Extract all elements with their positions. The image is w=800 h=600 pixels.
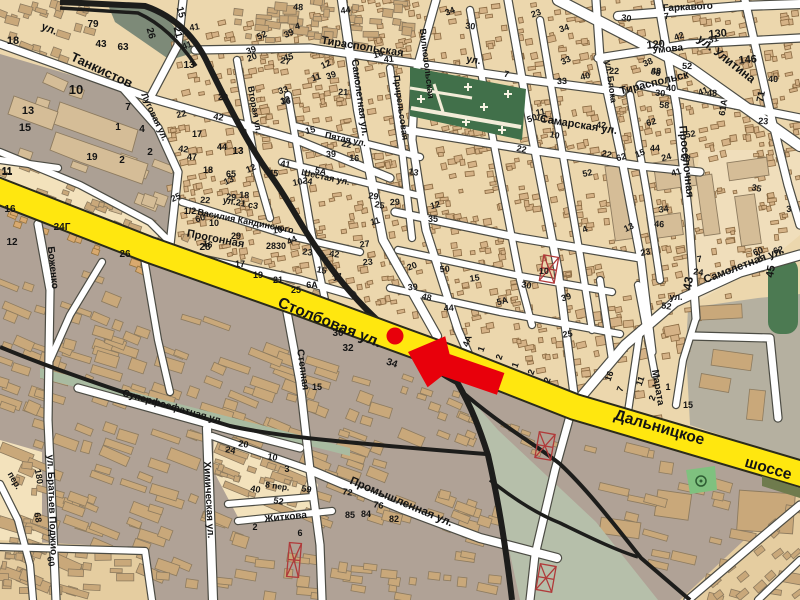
- svg-text:58: 58: [659, 100, 670, 111]
- svg-text:10: 10: [539, 266, 549, 276]
- svg-text:19: 19: [253, 270, 263, 280]
- svg-text:32: 32: [342, 343, 354, 354]
- svg-text:44: 44: [443, 303, 454, 314]
- svg-text:13: 13: [408, 166, 420, 178]
- svg-text:30: 30: [655, 88, 666, 99]
- svg-text:82: 82: [389, 514, 399, 524]
- svg-text:46: 46: [654, 219, 665, 230]
- svg-text:42: 42: [213, 111, 225, 123]
- svg-text:36: 36: [280, 96, 291, 107]
- svg-text:23: 23: [758, 116, 769, 127]
- svg-text:1: 1: [665, 382, 670, 392]
- svg-text:44: 44: [217, 142, 227, 152]
- svg-text:2: 2: [252, 522, 257, 532]
- svg-text:13: 13: [232, 146, 244, 157]
- svg-text:60: 60: [45, 556, 57, 568]
- svg-text:10: 10: [272, 224, 283, 235]
- svg-text:12: 12: [6, 237, 18, 248]
- svg-text:16: 16: [202, 238, 214, 250]
- svg-text:35: 35: [751, 182, 763, 194]
- svg-text:10: 10: [549, 129, 561, 141]
- svg-text:2: 2: [147, 147, 153, 158]
- svg-text:47: 47: [187, 152, 197, 162]
- svg-text:21: 21: [338, 87, 349, 98]
- svg-text:41: 41: [189, 21, 201, 33]
- svg-text:41: 41: [280, 158, 291, 169]
- svg-text:39: 39: [407, 282, 418, 293]
- svg-text:15: 15: [683, 400, 693, 410]
- svg-text:50: 50: [439, 264, 450, 275]
- svg-text:72: 72: [342, 486, 354, 498]
- svg-text:22: 22: [609, 66, 619, 76]
- svg-text:59: 59: [301, 483, 313, 495]
- svg-text:10: 10: [267, 451, 279, 463]
- svg-text:2830: 2830: [266, 241, 286, 251]
- svg-text:6: 6: [297, 528, 302, 538]
- svg-text:30: 30: [465, 21, 476, 32]
- svg-text:23: 23: [302, 246, 313, 257]
- svg-text:48: 48: [707, 88, 717, 98]
- svg-text:15: 15: [19, 122, 31, 134]
- svg-text:18: 18: [203, 165, 213, 175]
- svg-text:26: 26: [119, 249, 131, 260]
- svg-text:23: 23: [640, 246, 652, 258]
- svg-text:65: 65: [226, 169, 236, 179]
- svg-text:21: 21: [273, 275, 283, 285]
- svg-text:10: 10: [69, 82, 83, 97]
- svg-text:24: 24: [225, 444, 237, 456]
- svg-text:85: 85: [345, 510, 355, 520]
- svg-text:13: 13: [183, 60, 195, 71]
- svg-text:22: 22: [200, 195, 211, 206]
- svg-text:30: 30: [621, 12, 632, 23]
- svg-text:45: 45: [764, 264, 778, 278]
- svg-text:146: 146: [738, 53, 757, 67]
- svg-text:18: 18: [239, 190, 250, 201]
- svg-text:24Г: 24Г: [54, 222, 71, 233]
- svg-text:79: 79: [87, 19, 99, 30]
- svg-text:120: 120: [646, 38, 665, 52]
- svg-text:11: 11: [535, 106, 546, 118]
- svg-text:30: 30: [521, 279, 533, 291]
- svg-text:29: 29: [226, 192, 237, 203]
- svg-text:52: 52: [685, 128, 696, 139]
- svg-text:25: 25: [562, 328, 573, 339]
- svg-text:3: 3: [284, 464, 289, 474]
- svg-text:1/2: 1/2: [184, 206, 197, 216]
- svg-text:15: 15: [316, 264, 328, 276]
- svg-text:44: 44: [340, 4, 351, 15]
- svg-text:3: 3: [786, 204, 792, 214]
- svg-text:35: 35: [428, 214, 438, 224]
- svg-text:24: 24: [302, 175, 313, 186]
- svg-text:6А: 6А: [306, 280, 318, 290]
- svg-text:2: 2: [119, 155, 125, 166]
- svg-text:40: 40: [666, 83, 676, 93]
- svg-text:11: 11: [2, 167, 13, 178]
- svg-text:29: 29: [390, 197, 401, 208]
- svg-text:10: 10: [209, 218, 219, 228]
- svg-text:130: 130: [708, 27, 727, 41]
- svg-text:24: 24: [693, 266, 704, 277]
- svg-text:16: 16: [349, 153, 360, 164]
- svg-text:33: 33: [557, 76, 567, 86]
- svg-text:84: 84: [361, 509, 371, 519]
- svg-text:68: 68: [32, 512, 44, 524]
- svg-text:43: 43: [95, 39, 107, 50]
- svg-text:30: 30: [332, 328, 344, 339]
- svg-text:52: 52: [273, 495, 285, 507]
- svg-text:29: 29: [368, 190, 379, 201]
- svg-text:17: 17: [235, 259, 245, 269]
- svg-text:40: 40: [768, 74, 778, 84]
- svg-text:58: 58: [680, 152, 691, 163]
- svg-text:15: 15: [469, 272, 480, 283]
- svg-text:52: 52: [682, 61, 692, 71]
- svg-text:52: 52: [581, 167, 593, 179]
- svg-text:4: 4: [139, 124, 145, 135]
- svg-text:29: 29: [218, 92, 228, 102]
- svg-text:39: 39: [326, 149, 336, 159]
- svg-text:76: 76: [373, 499, 385, 511]
- svg-text:45: 45: [268, 168, 279, 179]
- svg-text:48: 48: [293, 2, 304, 13]
- svg-text:17: 17: [192, 129, 202, 139]
- svg-text:16: 16: [4, 204, 16, 215]
- svg-text:23: 23: [362, 257, 373, 268]
- svg-text:40: 40: [250, 483, 262, 495]
- svg-text:63: 63: [117, 42, 129, 53]
- svg-text:13: 13: [22, 105, 34, 117]
- svg-text:44: 44: [650, 143, 660, 153]
- svg-text:34: 34: [658, 203, 669, 214]
- svg-text:29: 29: [231, 231, 241, 241]
- svg-text:22: 22: [516, 143, 528, 155]
- svg-text:43: 43: [680, 275, 696, 291]
- svg-text:ул.: ул.: [669, 292, 682, 302]
- svg-text:10: 10: [292, 176, 304, 188]
- svg-text:27: 27: [359, 238, 370, 249]
- svg-text:42: 42: [329, 248, 340, 259]
- svg-text:25: 25: [291, 285, 301, 295]
- svg-text:20: 20: [238, 438, 250, 450]
- svg-text:15: 15: [312, 382, 322, 392]
- svg-text:41: 41: [383, 54, 394, 65]
- svg-text:22: 22: [341, 138, 353, 150]
- svg-text:42: 42: [596, 120, 607, 131]
- svg-text:1: 1: [115, 122, 121, 133]
- svg-text:52: 52: [661, 300, 672, 311]
- svg-text:7: 7: [125, 102, 131, 113]
- svg-text:18: 18: [7, 35, 19, 47]
- svg-text:19: 19: [86, 152, 98, 163]
